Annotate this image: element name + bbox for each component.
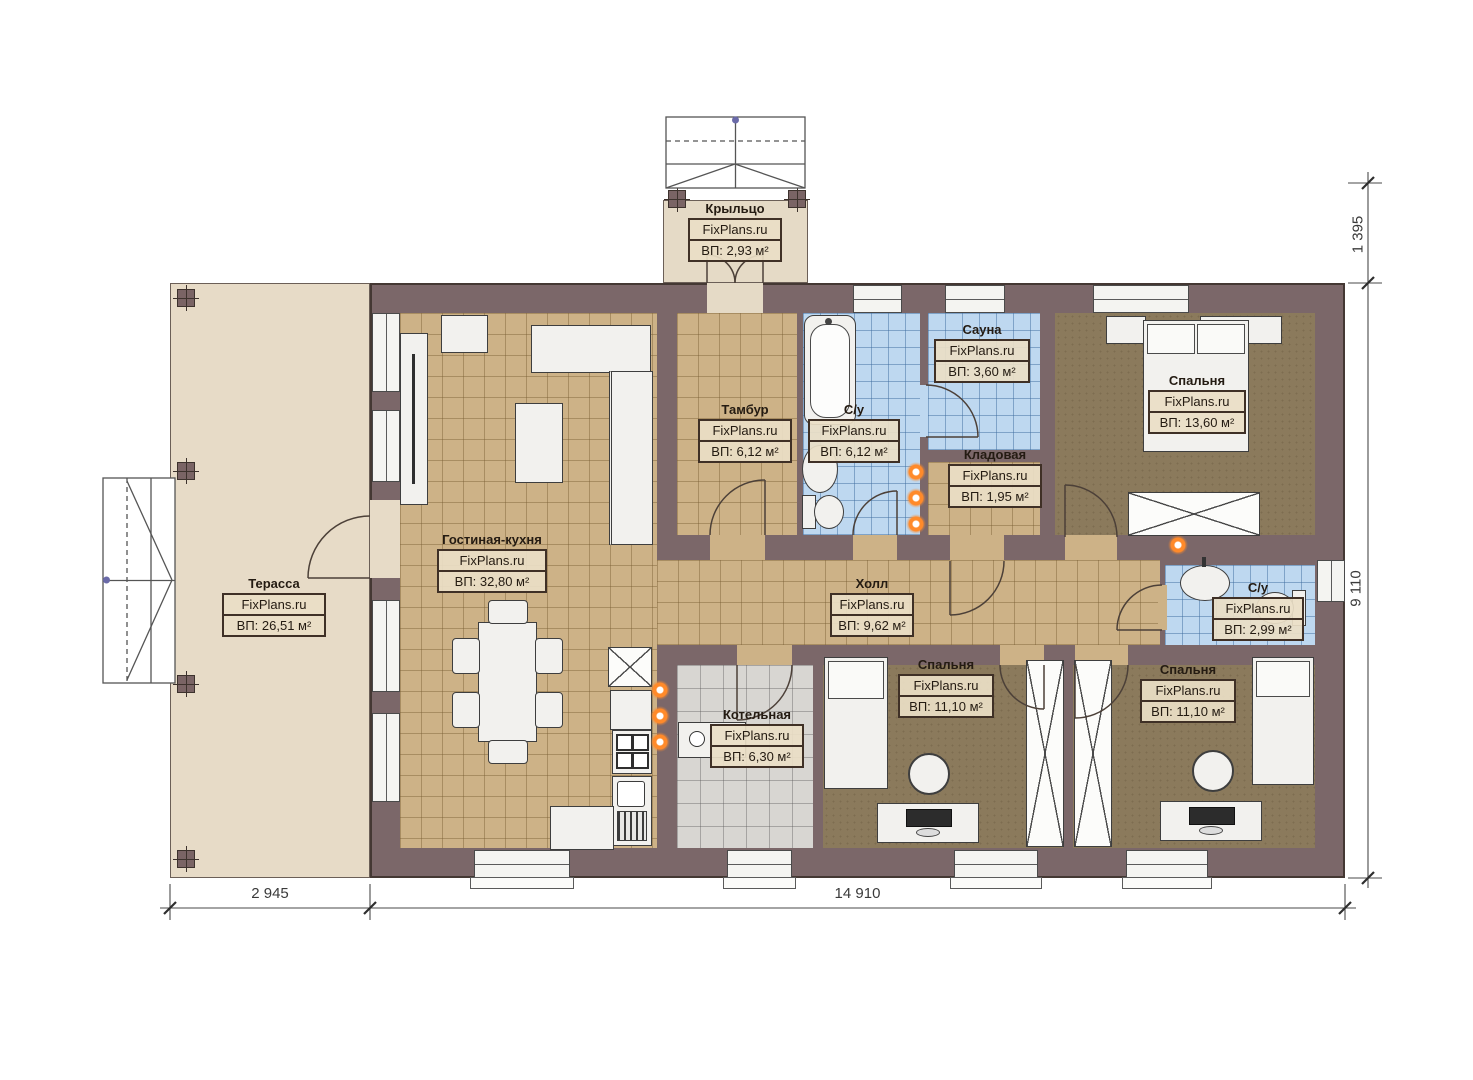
room-label-bedroom-mid: Спальня FixPlans.ru ВП: 11,10 м² [898, 657, 994, 718]
dining-chair [535, 638, 563, 674]
room-label-bedroom-right: Спальня FixPlans.ru ВП: 11,10 м² [1140, 662, 1236, 723]
room-label-vestibule: Тамбур FixPlans.ru ВП: 6,12 м² [698, 402, 792, 463]
terrace-steps [103, 478, 175, 683]
room-area: ВП: 6,30 м² [712, 745, 802, 766]
stove [612, 730, 652, 774]
room-area: ВП: 13,60 м² [1150, 411, 1244, 432]
brand-watermark: FixPlans.ru [1150, 392, 1244, 411]
room-label-terrace: Терасса FixPlans.ru ВП: 26,51 м² [222, 576, 326, 637]
kitchen-sink-unit [612, 776, 652, 846]
brand-watermark: FixPlans.ru [439, 551, 545, 570]
window [372, 713, 400, 802]
terrace-step-node [103, 577, 110, 584]
pillow [828, 661, 884, 699]
window [1317, 560, 1345, 602]
boiler-door-opening [737, 645, 792, 665]
dimension-building-width: 14 910 [810, 885, 905, 902]
sink-basin [617, 781, 645, 807]
room-area: ВП: 9,62 м² [832, 614, 912, 635]
room-name: Холл [830, 576, 914, 591]
window [727, 850, 792, 878]
terrace-post [177, 289, 195, 307]
terrace-post [177, 675, 195, 693]
radiator-icon [906, 514, 926, 534]
brand-watermark: FixPlans.ru [936, 341, 1028, 360]
room-info-box: FixPlans.ru ВП: 32,80 м² [437, 549, 547, 593]
room-label-sauna: Сауна FixPlans.ru ВП: 3,60 м² [934, 322, 1030, 383]
room-area: ВП: 26,51 м² [224, 614, 324, 635]
terrace-post [177, 850, 195, 868]
window-sill [950, 877, 1042, 889]
room-area: ВП: 2,99 м² [1214, 618, 1302, 639]
window [372, 600, 400, 692]
toilet-bowl [814, 495, 844, 529]
room-label-bathroom1: С/у FixPlans.ru ВП: 6,12 м² [808, 402, 900, 463]
window-sill [1122, 877, 1212, 889]
room-label-storage: Кладовая FixPlans.ru ВП: 1,95 м² [948, 447, 1042, 508]
dining-chair [535, 692, 563, 728]
room-info-box: FixPlans.ru ВП: 6,12 м² [698, 419, 792, 463]
side-table [441, 315, 488, 353]
room-label-boiler: Котельная FixPlans.ru ВП: 6,30 м² [710, 707, 804, 768]
pillow [1256, 661, 1310, 697]
room-name: Спальня [1140, 662, 1236, 677]
room-area: ВП: 3,60 м² [936, 360, 1028, 381]
terrace-step-diagonal [127, 580, 172, 680]
porch-steps [666, 117, 805, 188]
porch-step-diagonal [735, 164, 805, 188]
room-label-hall: Холл FixPlans.ru ВП: 9,62 м² [830, 576, 914, 637]
monitor-stand [1199, 826, 1223, 835]
radiator-icon [650, 706, 670, 726]
dining-chair [452, 638, 480, 674]
dimension-tick [1362, 872, 1374, 884]
room-name: Спальня [1148, 373, 1246, 388]
dimension-tick [1339, 902, 1351, 914]
terrace-step-diagonal [127, 481, 172, 580]
porch-step-node [732, 117, 739, 124]
kitchen-cabinet [608, 647, 652, 687]
tv-stand [400, 333, 428, 505]
wardrobe [1128, 492, 1260, 536]
room-name: Тамбур [698, 402, 792, 417]
single-bed [1252, 657, 1314, 785]
pillow [1197, 324, 1245, 354]
room-info-box: FixPlans.ru ВП: 13,60 м² [1148, 390, 1246, 434]
room-info-box: FixPlans.ru ВП: 6,30 м² [710, 724, 804, 768]
room-area: ВП: 6,12 м² [810, 440, 898, 461]
porch-step-diagonal [666, 164, 735, 188]
room-info-box: FixPlans.ru ВП: 11,10 м² [898, 674, 994, 718]
tv-screen [412, 354, 415, 484]
stove-burner [632, 734, 649, 751]
terrace-door-opening [370, 500, 400, 578]
room-name: Кладовая [948, 447, 1042, 462]
radiator-icon [650, 732, 670, 752]
porch-post [668, 190, 686, 208]
chair-drum [1192, 750, 1234, 792]
room-info-box: FixPlans.ru ВП: 1,95 м² [948, 464, 1042, 508]
window [372, 313, 400, 392]
window [954, 850, 1038, 878]
room-name: Котельная [710, 707, 804, 722]
room-area: ВП: 1,95 м² [950, 485, 1040, 506]
sauna-door-opening [920, 385, 928, 437]
window-sill [470, 877, 574, 889]
dimension-tick [1362, 277, 1374, 289]
room-info-box: FixPlans.ru ВП: 2,99 м² [1212, 597, 1304, 641]
coffee-table [515, 403, 563, 483]
corner-counter [550, 806, 614, 850]
radiator-icon [906, 462, 926, 482]
pillow [1147, 324, 1195, 354]
room-area: ВП: 6,12 м² [700, 440, 790, 461]
room-label-porch: Крыльцо FixPlans.ru ВП: 2,93 м² [688, 201, 782, 262]
room-name: Спальня [898, 657, 994, 672]
computer-monitor [1189, 807, 1235, 825]
brand-watermark: FixPlans.ru [1214, 599, 1302, 618]
room-area: ВП: 11,10 м² [1142, 700, 1234, 721]
room-name: Сауна [934, 322, 1030, 337]
desk [1160, 801, 1262, 841]
stove-burner [616, 752, 633, 769]
radiator-icon [906, 488, 926, 508]
window-sill [723, 877, 796, 889]
dimension-tick [1362, 177, 1374, 189]
window [1126, 850, 1208, 878]
boiler-dial [689, 731, 705, 747]
room-label-living-kitchen: Гостиная-кухня FixPlans.ru ВП: 32,80 м² [437, 532, 547, 593]
room-name: С/у [808, 402, 900, 417]
window [1093, 285, 1189, 313]
room-name: С/у [1212, 580, 1304, 595]
room-label-bathroom2: С/у FixPlans.ru ВП: 2,99 м² [1212, 580, 1304, 641]
desk [877, 803, 979, 843]
brand-watermark: FixPlans.ru [700, 421, 790, 440]
bathroom2-door-opening [1158, 585, 1167, 630]
sofa-seat-top [531, 325, 651, 373]
room-info-box: FixPlans.ru ВП: 3,60 м² [934, 339, 1030, 383]
room-area: ВП: 11,10 м² [900, 695, 992, 716]
bedroom-top-door-opening [1065, 535, 1117, 560]
room-label-bedroom-top: Спальня FixPlans.ru ВП: 13,60 м² [1148, 373, 1246, 434]
dimension-building-depth: 9 110 [1348, 565, 1365, 613]
sofa-seat-right [609, 371, 653, 545]
storage-door-opening [950, 535, 1004, 560]
dining-chair [452, 692, 480, 728]
porch-post [788, 190, 806, 208]
wardrobe [1026, 660, 1064, 847]
bathroom1-door-opening [853, 535, 897, 560]
chair-drum [908, 753, 950, 795]
brand-watermark: FixPlans.ru [810, 421, 898, 440]
room-area: ВП: 2,93 м² [690, 239, 780, 260]
washbasin-tap [1202, 557, 1206, 567]
room-name: Терасса [222, 576, 326, 591]
computer-monitor [906, 809, 952, 827]
window [853, 285, 902, 313]
dimension-tick [364, 902, 376, 914]
nightstand [1106, 316, 1146, 344]
brand-watermark: FixPlans.ru [1142, 681, 1234, 700]
room-name: Гостиная-кухня [437, 532, 547, 547]
radiator-icon [650, 680, 670, 700]
dining-chair [488, 600, 528, 624]
room-info-box: FixPlans.ru ВП: 6,12 м² [808, 419, 900, 463]
brand-watermark: FixPlans.ru [900, 676, 992, 695]
kitchen-counter [610, 690, 652, 730]
brand-watermark: FixPlans.ru [832, 595, 912, 614]
window [474, 850, 570, 878]
room-info-box: FixPlans.ru ВП: 9,62 м² [830, 593, 914, 637]
dimension-terrace-width: 2 945 [230, 885, 310, 902]
dimension-porch-offset: 1 395 [1350, 211, 1367, 259]
monitor-stand [916, 828, 940, 837]
single-bed [824, 657, 888, 789]
radiator-icon [1168, 535, 1188, 555]
dimension-tick [164, 902, 176, 914]
brand-watermark: FixPlans.ru [690, 220, 780, 239]
bathtub-drain [825, 318, 832, 325]
window [372, 410, 400, 482]
terrace-post [177, 462, 195, 480]
room-name: Крыльцо [688, 201, 782, 216]
porch-door-opening [707, 283, 763, 313]
brand-watermark: FixPlans.ru [224, 595, 324, 614]
dining-table [478, 622, 537, 742]
room-area: ВП: 32,80 м² [439, 570, 545, 591]
wardrobe [1074, 660, 1112, 847]
sink-rack [617, 811, 647, 841]
room-info-box: FixPlans.ru ВП: 26,51 м² [222, 593, 326, 637]
vestibule-door-opening [710, 535, 765, 560]
brand-watermark: FixPlans.ru [712, 726, 802, 745]
stove-burner [632, 752, 649, 769]
brand-watermark: FixPlans.ru [950, 466, 1040, 485]
room-info-box: FixPlans.ru ВП: 2,93 м² [688, 218, 782, 262]
window [945, 285, 1005, 313]
floor-plan: Крыльцо FixPlans.ru ВП: 2,93 м² Терасса … [0, 0, 1473, 1080]
stove-burner [616, 734, 633, 751]
dining-chair [488, 740, 528, 764]
room-info-box: FixPlans.ru ВП: 11,10 м² [1140, 679, 1236, 723]
